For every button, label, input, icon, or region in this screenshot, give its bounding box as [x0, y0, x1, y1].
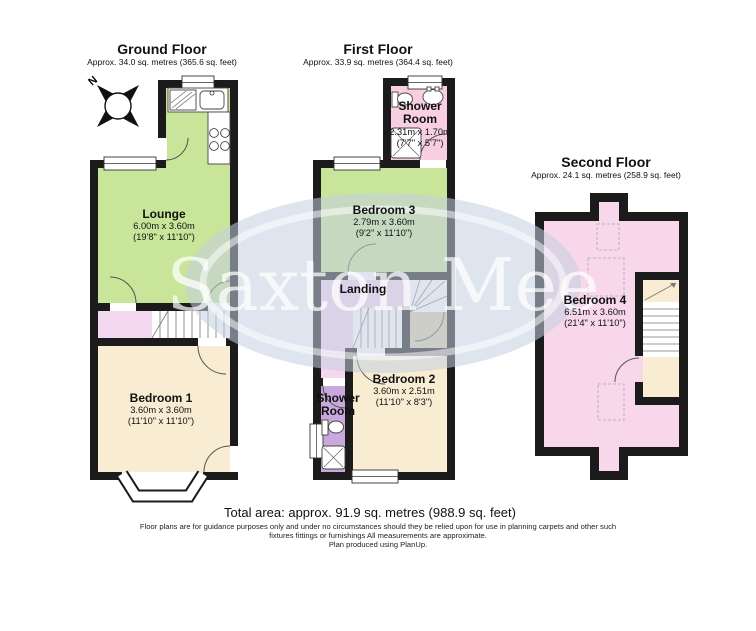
room-label-shower-room-1: Shower Room 2.31m x 1.70m (7'7" x 5'7")	[385, 100, 455, 149]
ground-floor-title: Ground Floor	[117, 41, 206, 57]
room-name: Bedroom 2	[373, 373, 436, 386]
second-floor-stairs	[643, 280, 679, 397]
room-name: Bedroom 3	[353, 204, 416, 217]
room-name: Bedroom 1	[128, 392, 194, 405]
toilet-bowl	[329, 421, 344, 433]
room-label-bedroom4: Bedroom 4 6.51m x 3.60m (21'4" x 11'10")	[564, 294, 627, 329]
vestibule-area	[410, 312, 447, 348]
room-metric: 2.79m x 3.60m	[353, 217, 416, 228]
disclaimer-line-1: Floor plans are for guidance purposes on…	[140, 522, 616, 531]
room-label-bedroom3: Bedroom 3 2.79m x 3.60m (9'2" x 11'10")	[353, 204, 416, 239]
room-name: Lounge	[133, 208, 195, 221]
ground-floor-plan: N	[86, 74, 238, 496]
room-metric: 6.00m x 3.60m	[133, 221, 195, 232]
room-label-landing: Landing	[340, 283, 387, 296]
room-imperial: (11'10" x 11'10")	[128, 416, 194, 427]
room-metric: 2.31m x 1.70m	[385, 127, 455, 138]
first-floor-title: First Floor	[343, 41, 412, 57]
room-name: Landing	[340, 283, 387, 296]
second-floor-subtitle: Approx. 24.1 sq. metres (258.9 sq. feet)	[531, 170, 681, 180]
hob-burner	[221, 129, 230, 138]
first-floor-subtitle: Approx. 33.9 sq. metres (364.4 sq. feet)	[303, 57, 453, 67]
room-metric: 3.60m x 3.60m	[128, 405, 194, 416]
shower2-window	[310, 424, 323, 458]
room-label-bedroom1: Bedroom 1 3.60m x 3.60m (11'10" x 11'10"…	[128, 392, 194, 427]
room-imperial: (9'2" x 11'10")	[353, 228, 416, 239]
worktop	[208, 112, 230, 164]
room-imperial: (7'7" x 5'7")	[385, 138, 455, 149]
room-imperial: (11'10" x 8'3")	[373, 397, 436, 408]
total-area-text: Total area: approx. 91.9 sq. metres (988…	[224, 505, 516, 520]
disclaimer-line-3: Plan produced using PlanUp.	[329, 540, 427, 549]
bedroom3-window	[334, 157, 380, 170]
ground-floor-subtitle: Approx. 34.0 sq. metres (365.6 sq. feet)	[87, 57, 237, 67]
chimney-top-recess	[599, 202, 619, 221]
second-floor-plan	[535, 193, 688, 480]
hob-burner	[221, 142, 230, 151]
room-label-lounge: Lounge 6.00m x 3.60m (19'8" x 11'10")	[133, 208, 195, 243]
room-metric: 6.51m x 3.60m	[564, 307, 627, 318]
ground-floor-stairs	[152, 311, 230, 338]
tap	[210, 91, 214, 95]
room-imperial: (19'8" x 11'10")	[133, 232, 195, 243]
hob-burner	[210, 142, 219, 151]
second-floor-title: Second Floor	[561, 154, 650, 170]
room-metric: 3.60m x 2.51m	[373, 386, 436, 397]
room-name: Shower Room	[385, 100, 455, 127]
room-label-bedroom2: Bedroom 2 3.60m x 2.51m (11'10" x 8'3")	[373, 373, 436, 408]
disclaimer-line-2: fixtures fittings or furnishings All mea…	[269, 531, 487, 540]
hob-burner	[210, 129, 219, 138]
bay-window	[122, 474, 203, 496]
compass-rose-icon: N	[86, 74, 139, 127]
corridor-area	[321, 348, 345, 378]
room-label-shower-room-2: Shower Room	[303, 392, 373, 419]
chimney-bottom-recess	[599, 447, 619, 471]
room-imperial: (21'4" x 11'10")	[564, 318, 627, 329]
lounge-window	[104, 157, 156, 170]
room-name: Shower Room	[303, 392, 373, 419]
toilet-cistern	[322, 420, 328, 435]
shower-tray	[322, 446, 345, 469]
kitchen-window	[182, 76, 214, 89]
floorplan-page: N	[0, 0, 756, 631]
room-name: Bedroom 4	[564, 294, 627, 307]
bedroom2-window	[352, 470, 398, 483]
